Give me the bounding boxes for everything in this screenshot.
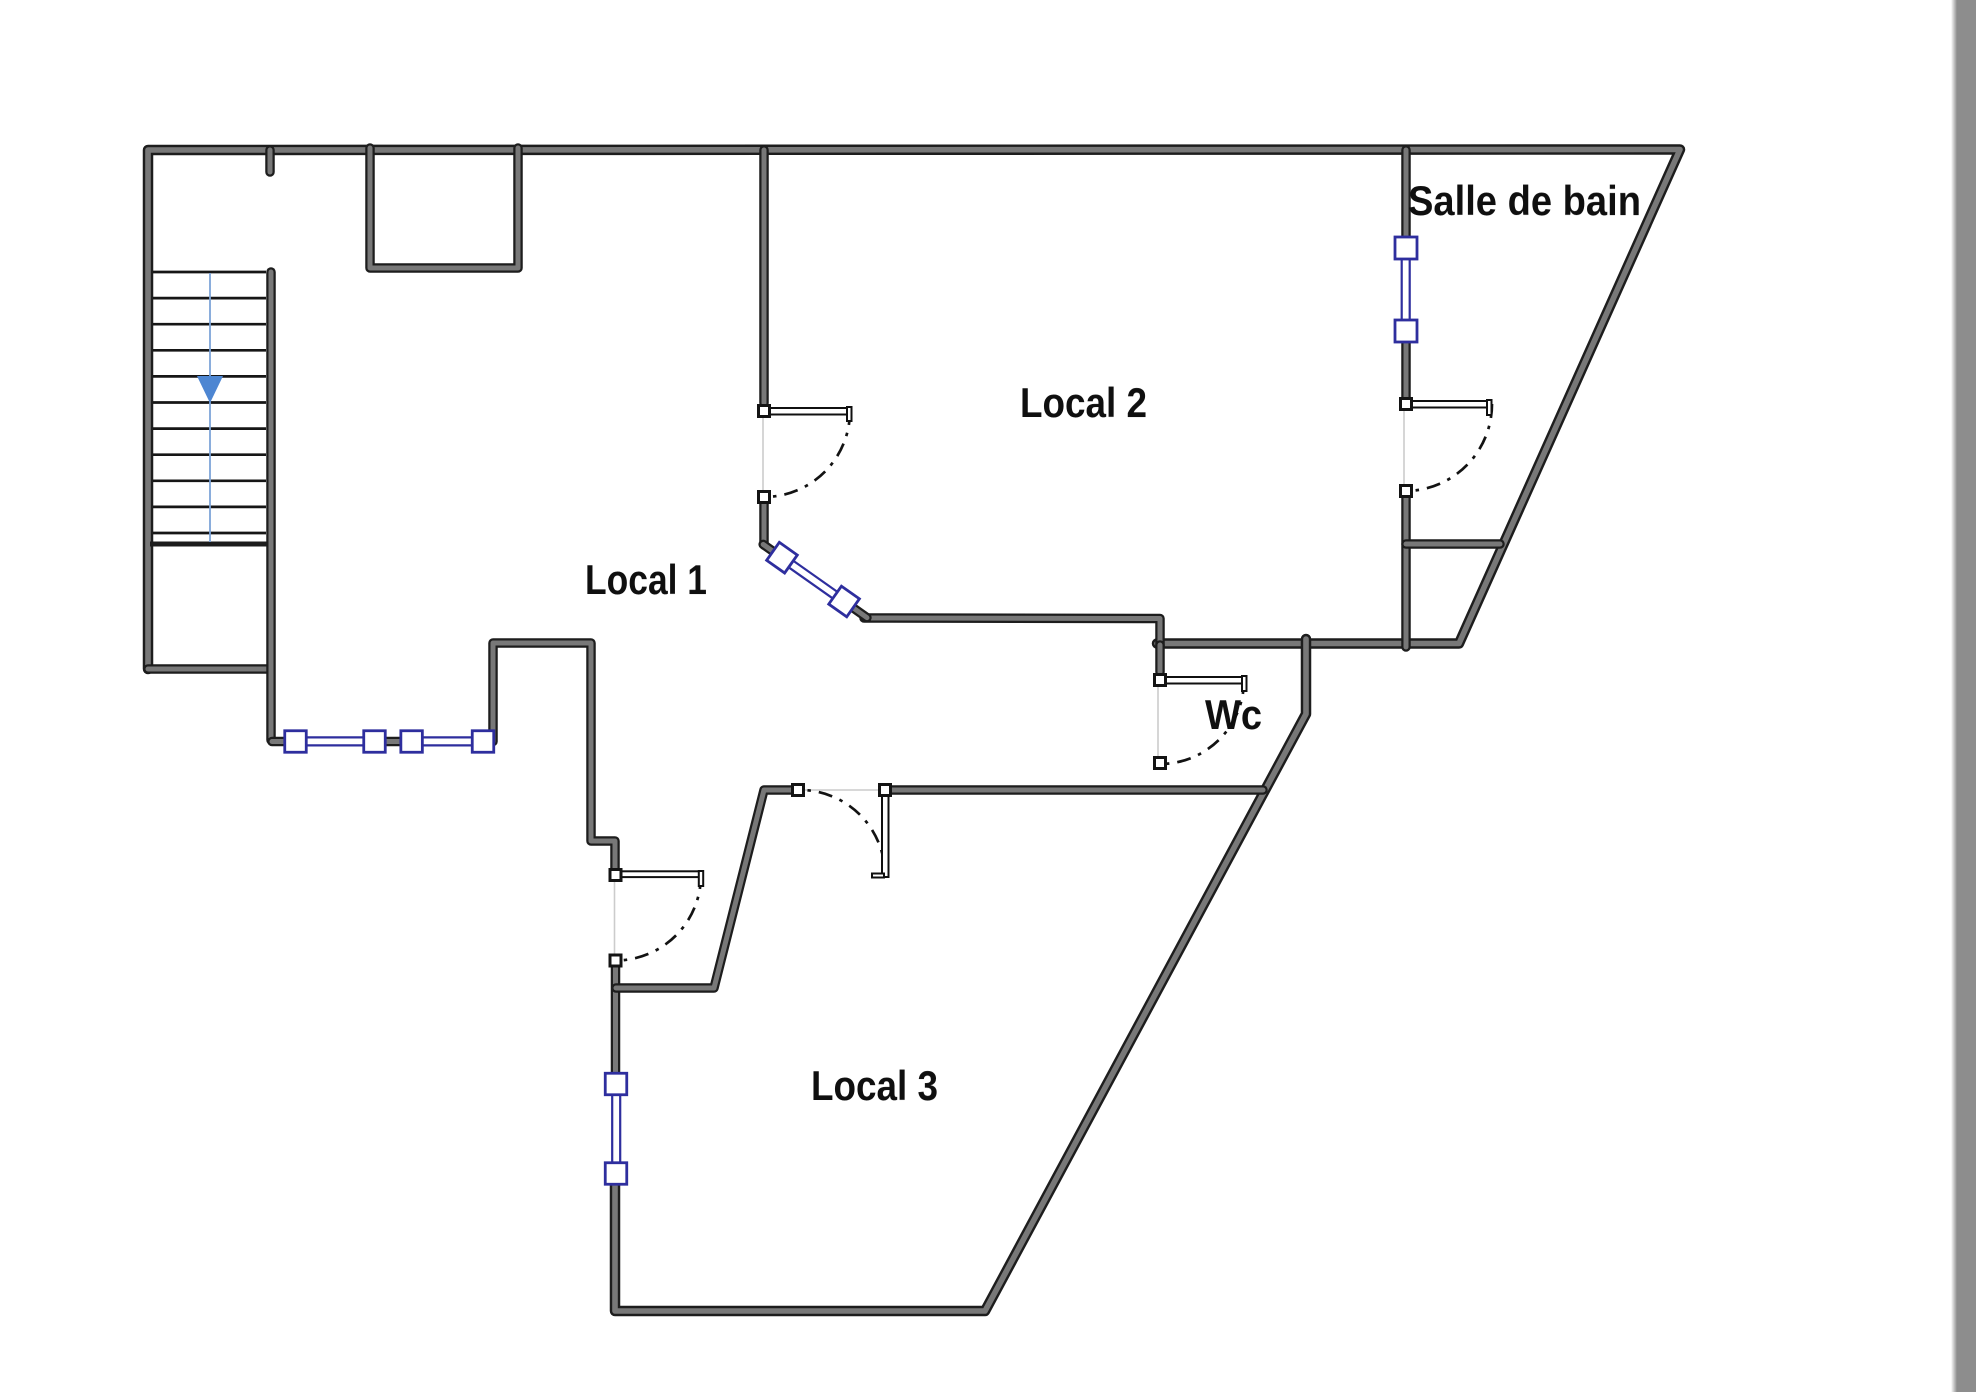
svg-text:Salle de bain: Salle de bain xyxy=(1408,177,1641,224)
svg-text:Local 2: Local 2 xyxy=(1020,379,1147,426)
svg-text:Local 3: Local 3 xyxy=(811,1062,938,1109)
svg-text:Local 1: Local 1 xyxy=(585,556,707,603)
svg-text:Wc: Wc xyxy=(1205,691,1262,738)
